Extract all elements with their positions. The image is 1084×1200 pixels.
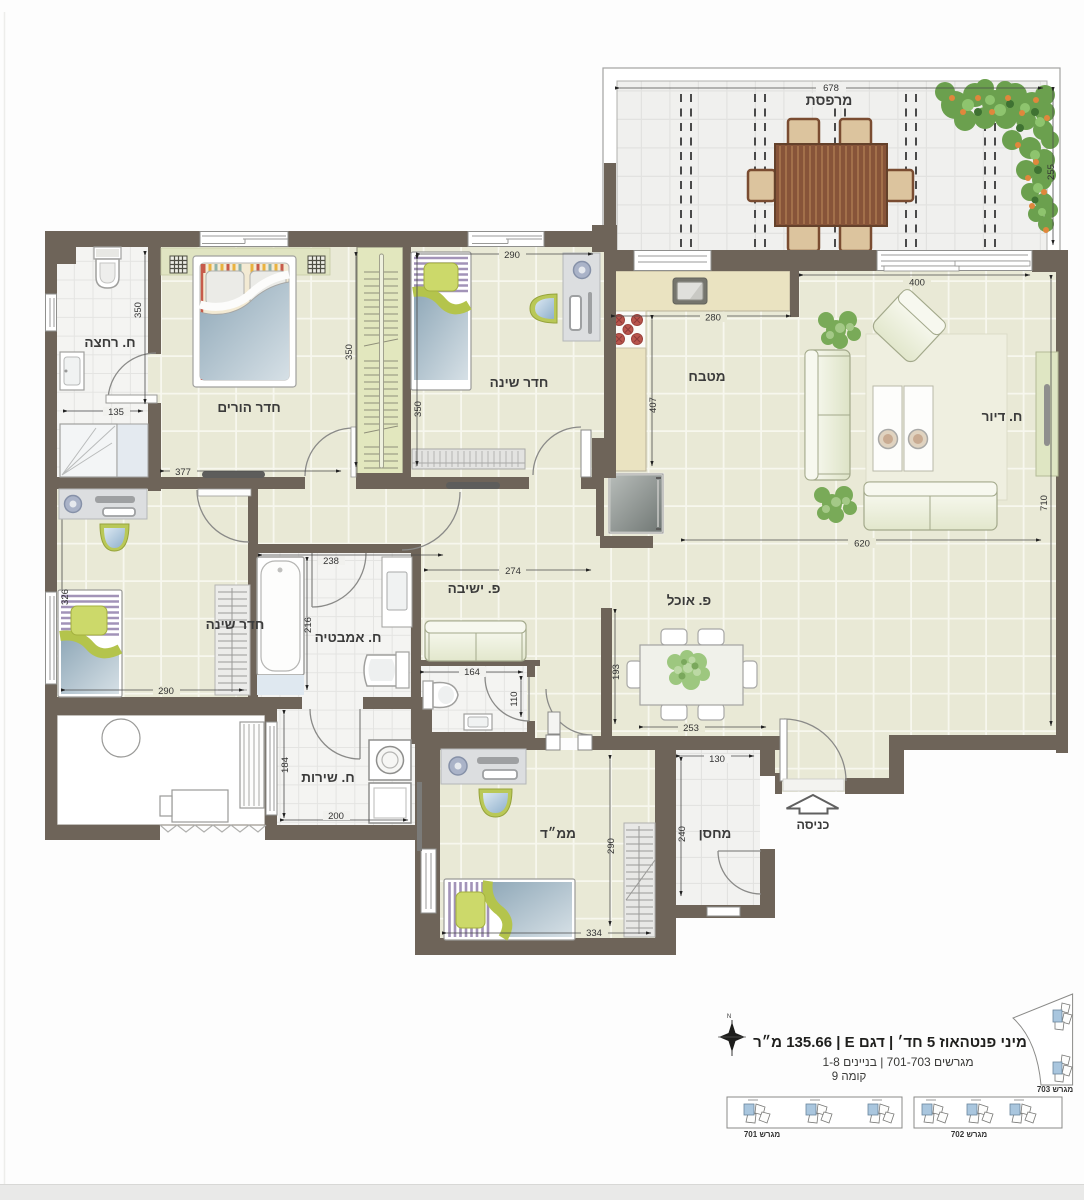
- svg-text:334: 334: [586, 928, 602, 939]
- svg-text:240: 240: [677, 826, 688, 842]
- svg-text:620: 620: [854, 539, 870, 550]
- svg-text:פ. אוכל: פ. אוכל: [667, 593, 712, 608]
- svg-text:280: 280: [705, 313, 721, 324]
- svg-text:377: 377: [175, 467, 191, 478]
- svg-text:ח. דיור: ח. דיור: [982, 409, 1023, 424]
- svg-text:כניסה: כניסה: [797, 818, 830, 832]
- svg-text:290: 290: [158, 686, 174, 697]
- svg-text:מגרש 703: מגרש 703: [1037, 1085, 1073, 1094]
- svg-text:חדר הורים: חדר הורים: [217, 400, 280, 415]
- svg-text:253: 253: [683, 723, 699, 734]
- svg-text:מגרש 702: מגרש 702: [951, 1130, 987, 1139]
- svg-text:184: 184: [280, 757, 291, 773]
- svg-text:350: 350: [344, 344, 355, 360]
- svg-text:מחסן: מחסן: [699, 826, 732, 841]
- svg-text:חדר שינה: חדר שינה: [490, 375, 549, 390]
- svg-text:710: 710: [1039, 495, 1050, 511]
- svg-text:חדר שינה: חדר שינה: [206, 617, 265, 632]
- svg-text:ממ״ד: ממ״ד: [540, 826, 576, 841]
- svg-text:ח. שירות: ח. שירות: [301, 770, 354, 785]
- svg-text:290: 290: [606, 838, 617, 854]
- svg-text:מגרשים 701-703 | בניינים 1-8: מגרשים 701-703 | בניינים 1-8: [822, 1055, 973, 1069]
- svg-text:ח. אמבטיה: ח. אמבטיה: [315, 630, 382, 645]
- svg-text:193: 193: [611, 664, 622, 680]
- svg-text:238: 238: [323, 556, 339, 567]
- svg-text:N: N: [727, 1014, 731, 1020]
- svg-text:290: 290: [504, 250, 520, 261]
- svg-text:216: 216: [303, 617, 314, 633]
- svg-text:פ. ישיבה: פ. ישיבה: [448, 581, 501, 596]
- svg-text:255: 255: [1046, 164, 1057, 180]
- svg-text:135: 135: [108, 407, 124, 418]
- svg-text:מיני פנטהאוז 5 חד׳ | דגם E‏ |: מיני פנטהאוז 5 חד׳ | דגם E‏ | 135.66 מ״ר: [753, 1034, 1027, 1051]
- svg-text:400: 400: [909, 278, 925, 289]
- svg-text:מרפסת: מרפסת: [806, 92, 853, 108]
- svg-text:110: 110: [509, 691, 520, 706]
- svg-text:ח. רחצה: ח. רחצה: [84, 335, 135, 350]
- svg-text:407: 407: [648, 397, 659, 413]
- svg-text:130: 130: [709, 754, 725, 765]
- svg-text:מטבח: מטבח: [688, 369, 725, 384]
- svg-text:200: 200: [328, 811, 344, 822]
- svg-text:350: 350: [413, 401, 424, 417]
- svg-text:מגרש 701: מגרש 701: [744, 1130, 780, 1139]
- svg-text:274: 274: [505, 566, 521, 577]
- svg-text:קומה 9: קומה 9: [832, 1071, 867, 1083]
- svg-text:164: 164: [464, 667, 480, 678]
- svg-text:350: 350: [133, 302, 144, 318]
- svg-text:326: 326: [60, 589, 71, 605]
